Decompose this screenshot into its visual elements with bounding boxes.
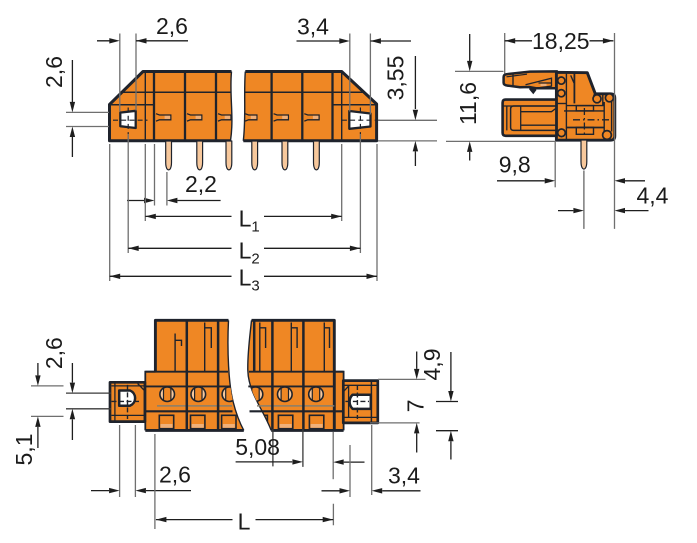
svg-text:2,2: 2,2 [185,171,217,197]
svg-text:3,55: 3,55 [383,56,409,101]
svg-text:3,4: 3,4 [297,14,329,40]
svg-text:2,6: 2,6 [159,462,191,488]
svg-text:2,6: 2,6 [41,56,67,88]
svg-text:9,8: 9,8 [499,151,531,177]
svg-text:L: L [238,509,251,535]
svg-text:2,6: 2,6 [156,13,188,39]
svg-text:5,1: 5,1 [11,434,37,466]
svg-text:11,6: 11,6 [455,82,481,125]
svg-text:18,25: 18,25 [532,28,590,54]
svg-text:4,4: 4,4 [637,182,669,208]
svg-text:7: 7 [403,399,429,412]
svg-text:4,9: 4,9 [419,349,445,381]
svg-text:3,4: 3,4 [388,462,420,488]
svg-text:2,6: 2,6 [41,337,67,369]
svg-text:5,08: 5,08 [235,434,280,460]
